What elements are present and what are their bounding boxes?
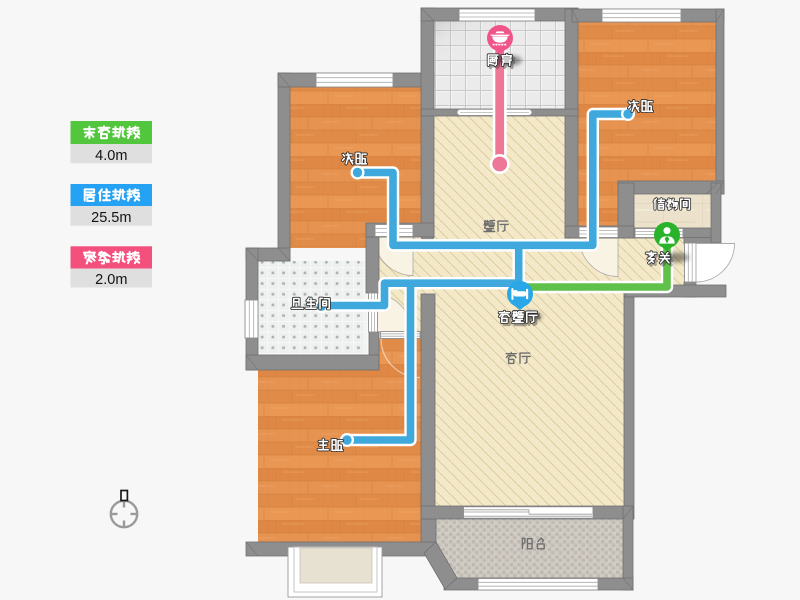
svg-text:2.0m: 2.0m bbox=[95, 272, 127, 288]
svg-text:4.0m: 4.0m bbox=[95, 148, 127, 164]
svg-text:25.5m: 25.5m bbox=[91, 210, 131, 226]
